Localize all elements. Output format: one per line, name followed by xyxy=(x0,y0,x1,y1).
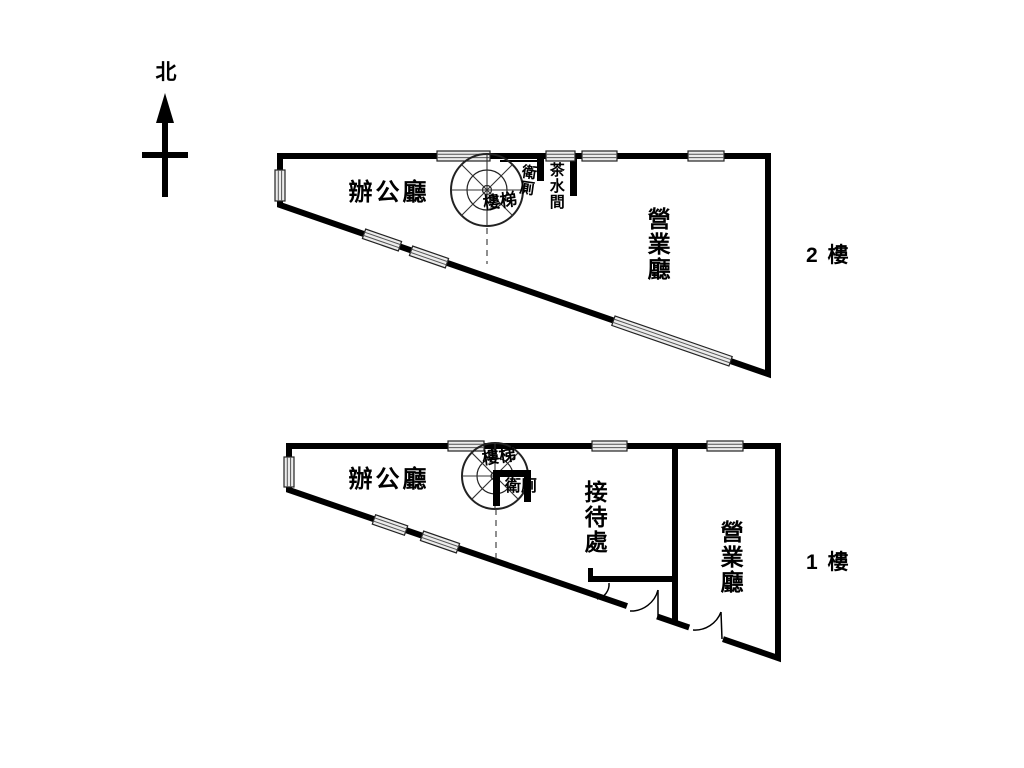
floor-plan-canvas: 北 辦公廳 樓梯 衛厠 茶水間 營業廳 2 樓 辦公廳 樓梯 衛厠 接待處 營業… xyxy=(0,0,1024,768)
room-label-reception-1f: 接待處 xyxy=(582,480,606,555)
floor-label-1f: 1 樓 xyxy=(806,552,851,574)
north-label: 北 xyxy=(148,62,184,84)
north-arrow-icon xyxy=(142,93,188,197)
room-label-toilet-1f: 衛厠 xyxy=(505,479,537,496)
floor1-entrance-doors xyxy=(597,583,723,639)
floor-label-2f: 2 樓 xyxy=(806,245,851,267)
room-label-office-1f: 辦公廳 xyxy=(339,467,439,492)
room-label-toilet-2f: 衛厠 xyxy=(517,163,537,197)
room-label-business-hall-2f: 營業廳 xyxy=(645,207,669,282)
floor-plan-drawing xyxy=(0,0,1024,768)
room-label-business-hall-1f: 營業廳 xyxy=(718,520,742,595)
room-label-pantry-2f: 茶水間 xyxy=(548,162,564,210)
room-label-office-2f: 辦公廳 xyxy=(339,180,439,205)
